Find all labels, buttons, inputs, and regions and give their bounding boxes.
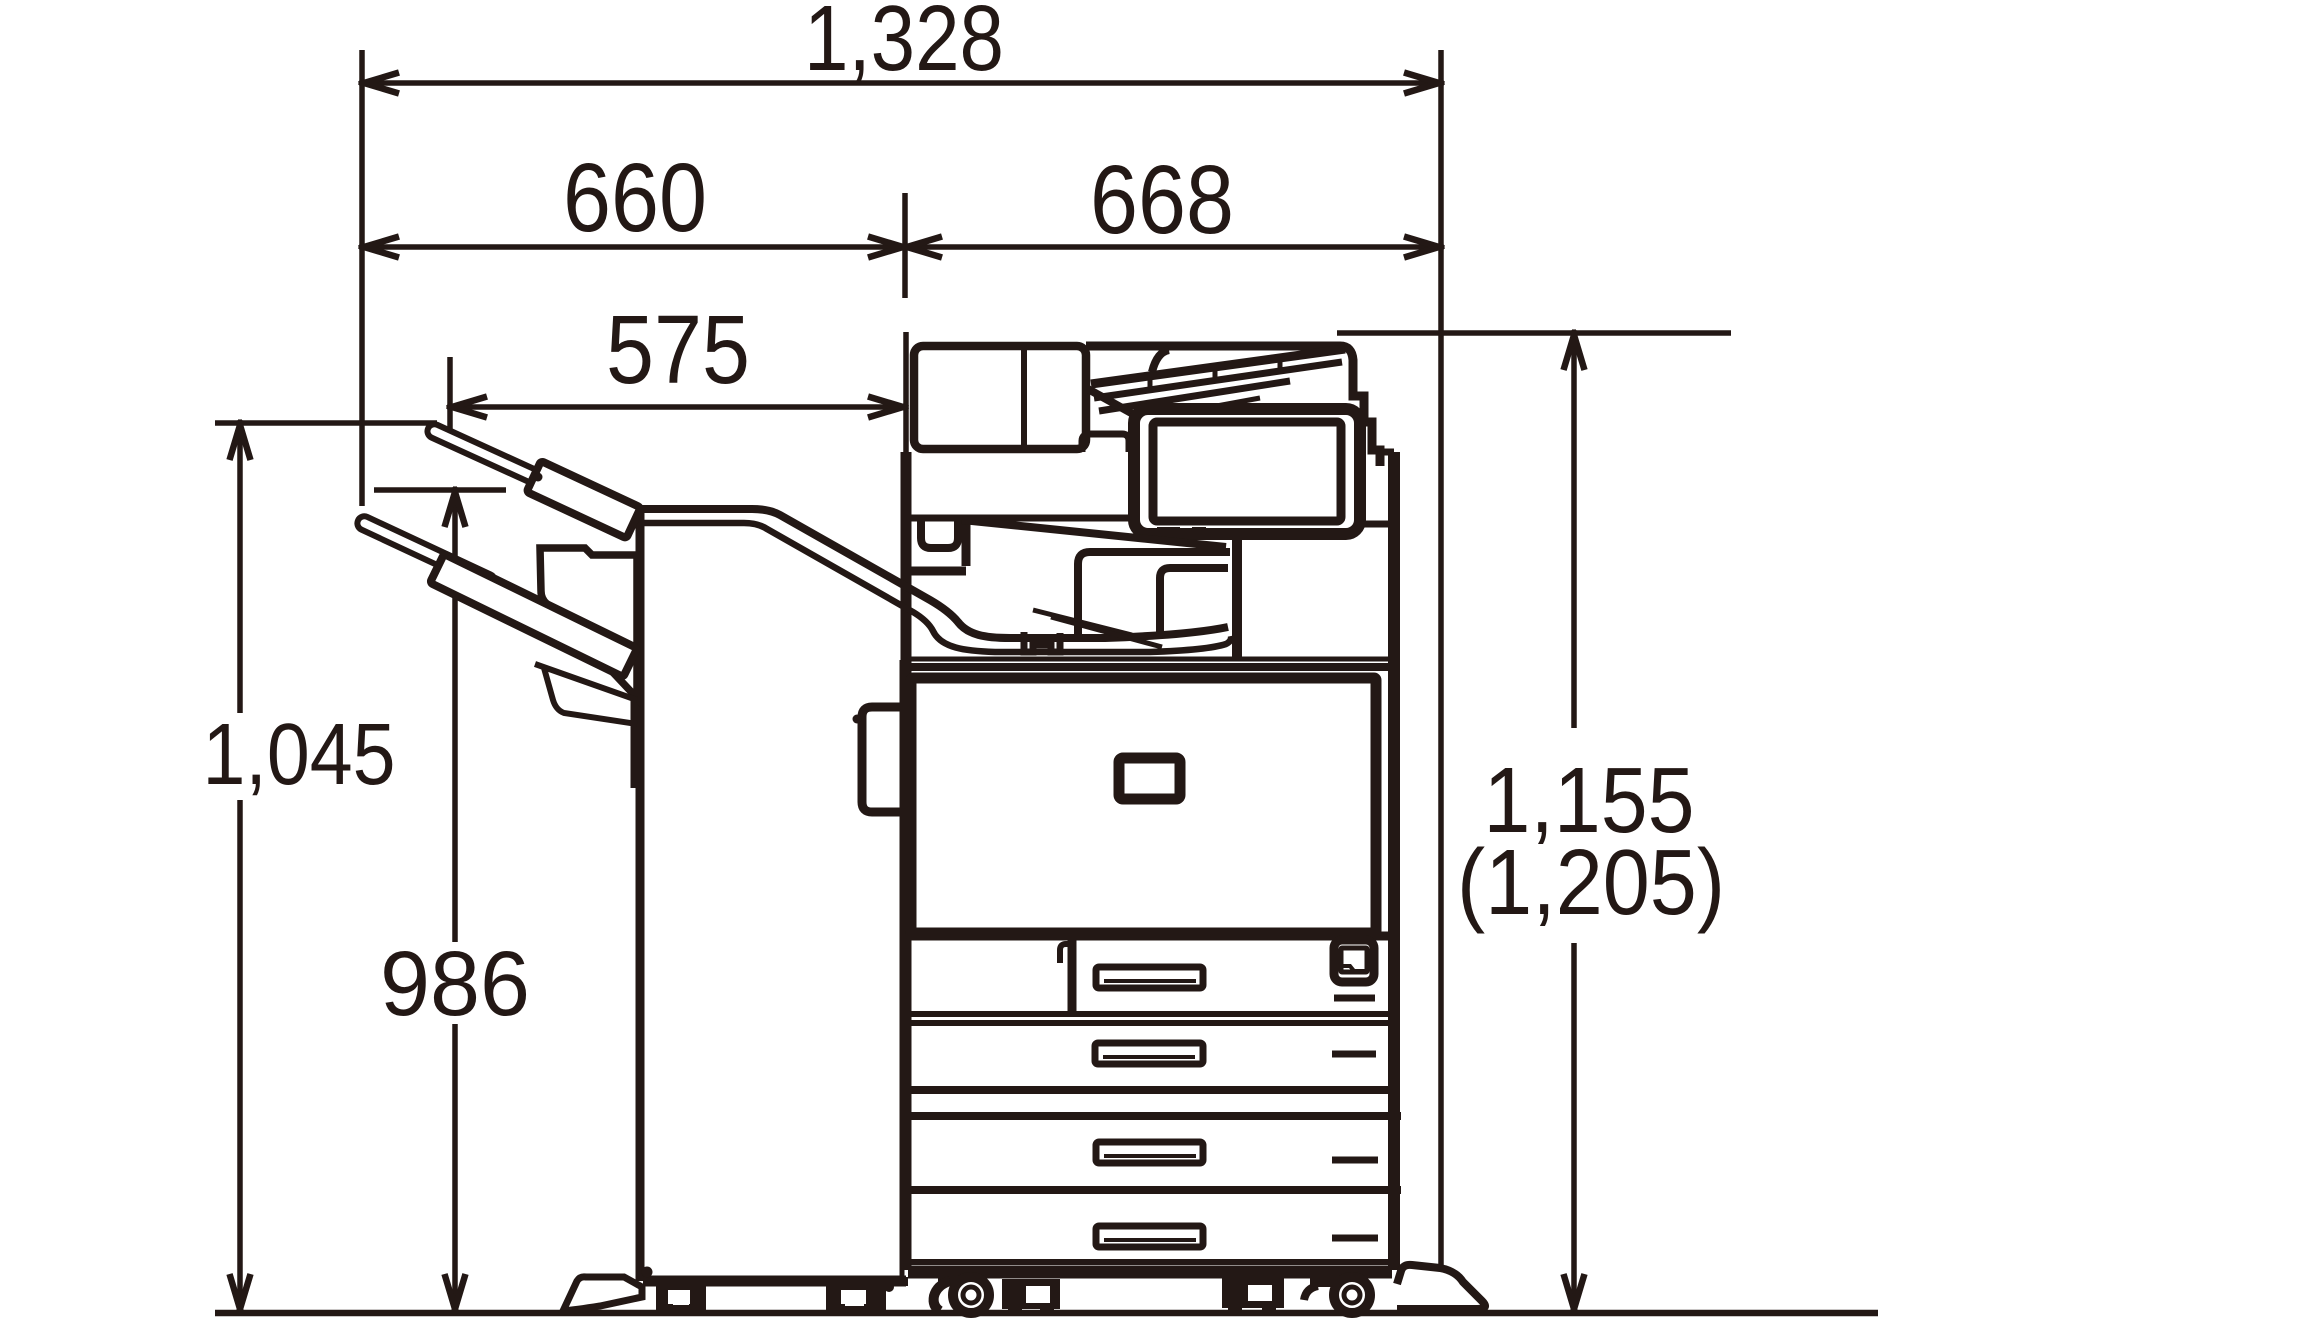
svg-text:575: 575: [606, 295, 750, 404]
svg-text:(1,205): (1,205): [1457, 830, 1725, 934]
svg-text:986: 986: [380, 933, 530, 1035]
svg-text:1,328: 1,328: [804, 0, 1004, 90]
svg-text:668: 668: [1090, 145, 1234, 254]
svg-text:660: 660: [563, 143, 707, 252]
svg-text:1,045: 1,045: [203, 706, 396, 803]
